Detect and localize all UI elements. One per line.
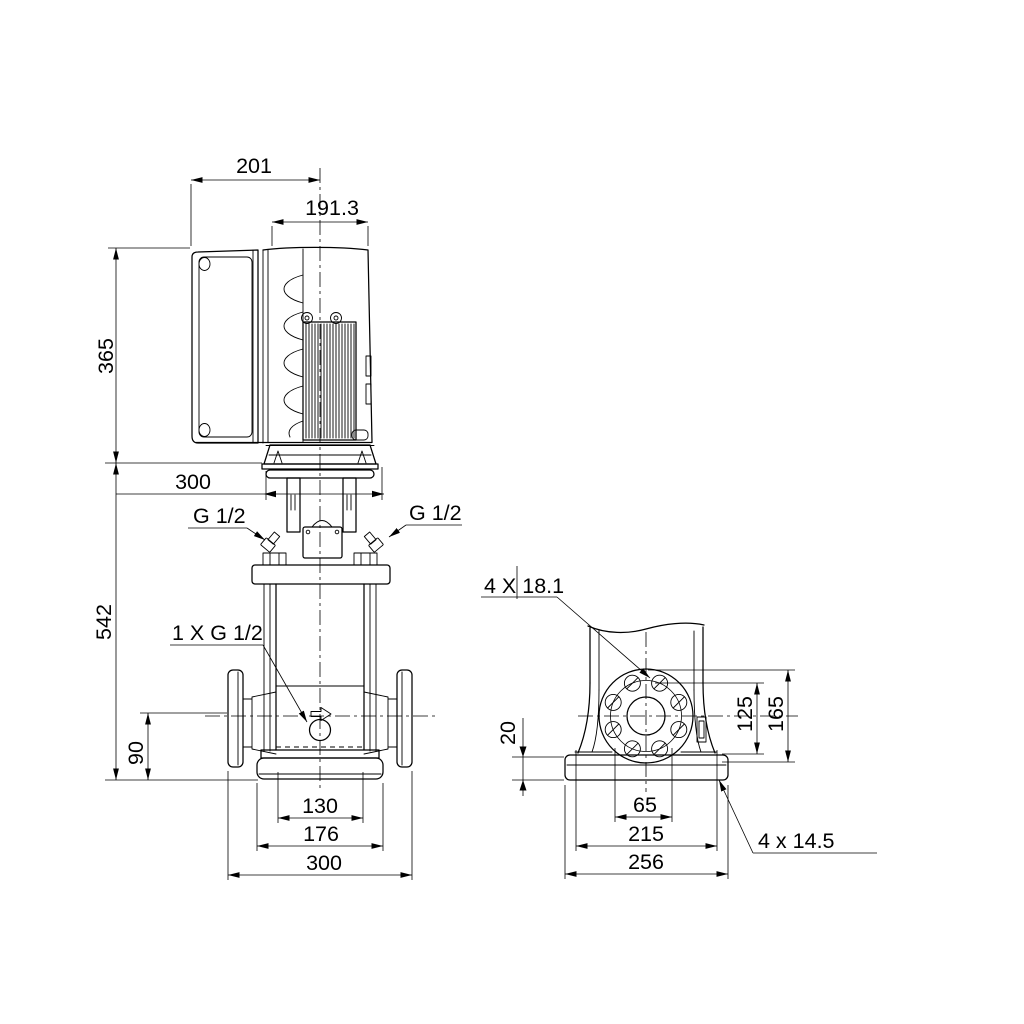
dim-300-head-text: 300 bbox=[175, 470, 211, 494]
dim-90: 90 bbox=[124, 713, 227, 780]
discharge-flange bbox=[397, 670, 412, 767]
dim-256-text: 256 bbox=[628, 850, 664, 874]
dim-20: 20 bbox=[496, 718, 564, 796]
label-plug-right: G 1/2 bbox=[389, 501, 462, 537]
dim-300-ports-text: 300 bbox=[306, 851, 342, 875]
dim-215-text: 215 bbox=[628, 822, 664, 846]
vent-plug-right bbox=[362, 530, 383, 552]
dim-125-text: 125 bbox=[733, 696, 757, 732]
cable-gland-bumps bbox=[284, 275, 303, 437]
dim-90-text: 90 bbox=[124, 741, 148, 765]
dim-165-text: 165 bbox=[764, 696, 788, 732]
dim-191-3-text: 191.3 bbox=[305, 196, 359, 220]
dim-201-text: 201 bbox=[236, 154, 272, 178]
dim-542-text: 542 bbox=[92, 604, 116, 640]
drawing-canvas: 201 191.3 365 300 bbox=[0, 0, 1024, 1024]
pump-top-flange bbox=[252, 565, 390, 584]
side-base-plate bbox=[565, 755, 728, 780]
label-base-holes-text: 4 x 14.5 bbox=[758, 829, 835, 853]
dim-125: 125 bbox=[655, 683, 764, 754]
pump-dimensional-drawing: 201 191.3 365 300 bbox=[0, 0, 1024, 1024]
side-view: 4 X 18.1 20 125 bbox=[481, 566, 877, 879]
flow-arrow-icon bbox=[311, 708, 331, 721]
dim-176-text: 176 bbox=[303, 822, 339, 846]
label-plug-left-text: G 1/2 bbox=[193, 504, 246, 528]
label-flange-holes-text: 4 X 18.1 bbox=[484, 574, 564, 598]
front-view: 201 191.3 365 300 bbox=[92, 154, 462, 880]
dim-201: 201 bbox=[191, 154, 320, 246]
motor-assembly bbox=[192, 247, 378, 478]
dim-20-text: 20 bbox=[496, 721, 520, 745]
label-drain-plug: 1 X G 1/2 bbox=[170, 621, 307, 722]
motor-louvers bbox=[352, 356, 371, 440]
vent-plug-left bbox=[261, 530, 282, 552]
side-dimensions: 4 X 18.1 20 125 bbox=[481, 566, 877, 879]
heatsink-fins bbox=[303, 322, 356, 440]
dim-365: 365 bbox=[94, 248, 262, 463]
dim-365-text: 365 bbox=[94, 338, 118, 374]
label-base-holes: 4 x 14.5 bbox=[719, 780, 877, 853]
dim-300-head: 300 bbox=[116, 467, 384, 500]
control-box-hole-top bbox=[199, 258, 210, 271]
dim-65-text: 65 bbox=[633, 793, 657, 817]
front-dimensions: 201 191.3 365 300 bbox=[92, 154, 462, 880]
dim-130-text: 130 bbox=[302, 794, 338, 818]
control-box-hole-bottom bbox=[199, 424, 210, 437]
label-plug-left: G 1/2 bbox=[188, 504, 265, 540]
label-drain-plug-text: 1 X G 1/2 bbox=[172, 621, 263, 645]
label-flange-holes: 4 X 18.1 bbox=[481, 566, 650, 678]
label-plug-right-text: G 1/2 bbox=[409, 501, 462, 525]
suction-flange bbox=[228, 670, 243, 767]
dim-130: 130 bbox=[278, 772, 363, 823]
